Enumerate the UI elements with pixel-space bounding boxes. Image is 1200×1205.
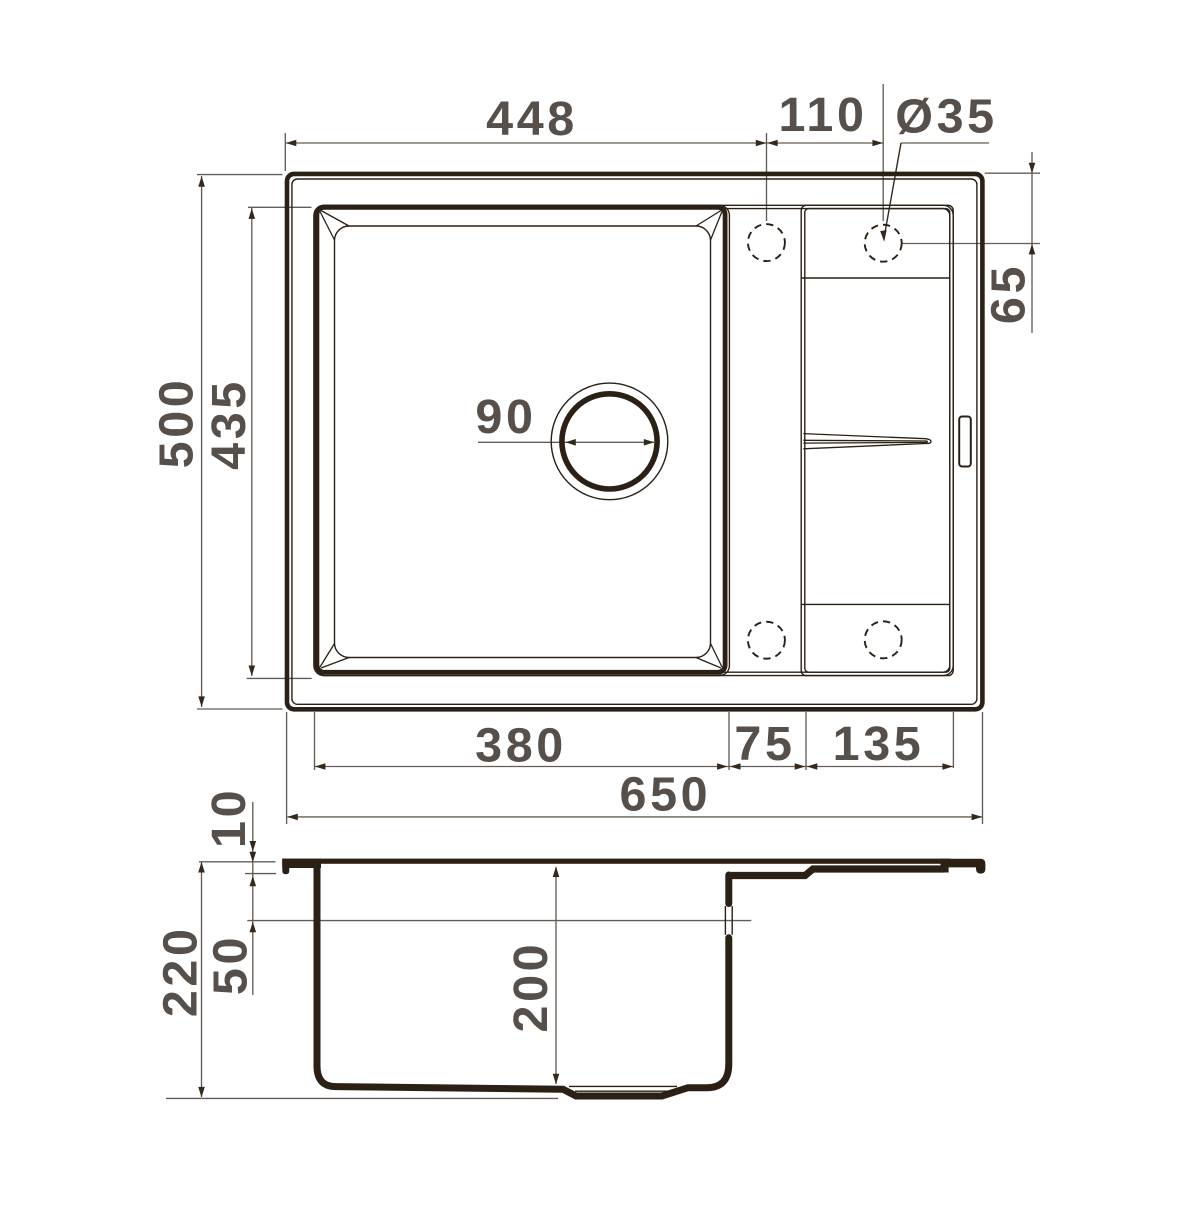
svg-text:220: 220 <box>153 925 207 1017</box>
svg-text:200: 200 <box>504 941 558 1033</box>
svg-text:50: 50 <box>203 934 257 995</box>
svg-text:435: 435 <box>202 378 256 470</box>
svg-text:380: 380 <box>475 718 567 772</box>
svg-text:135: 135 <box>833 717 925 771</box>
svg-text:500: 500 <box>150 377 204 469</box>
svg-text:65: 65 <box>982 263 1036 324</box>
svg-text:Ø35: Ø35 <box>895 90 997 144</box>
svg-text:110: 110 <box>778 88 867 142</box>
svg-text:10: 10 <box>202 787 256 848</box>
svg-text:90: 90 <box>475 390 536 444</box>
svg-text:448: 448 <box>486 92 578 146</box>
svg-text:75: 75 <box>734 717 795 771</box>
svg-text:650: 650 <box>620 767 712 821</box>
